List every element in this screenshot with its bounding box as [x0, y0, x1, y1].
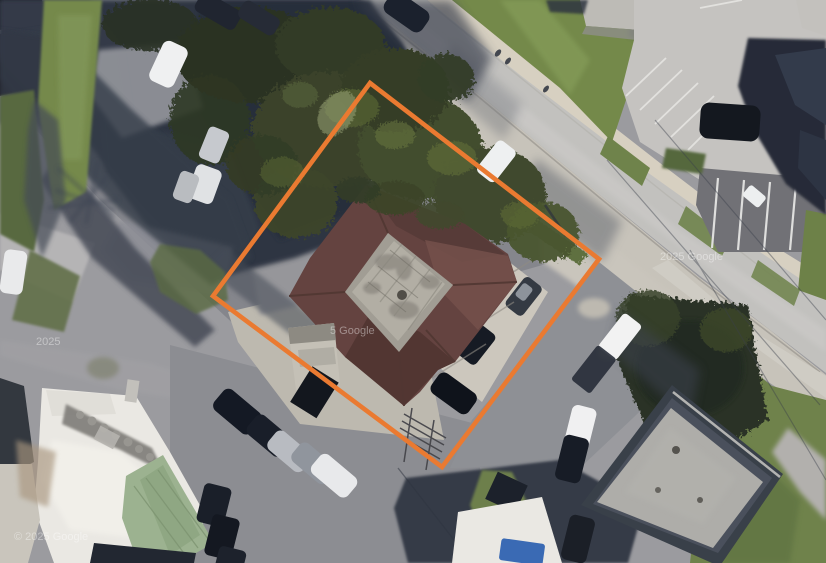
svg-text:© 2025 Google: © 2025 Google — [14, 531, 88, 543]
svg-text:2025: 2025 — [36, 336, 60, 348]
svg-text:5 Google: 5 Google — [330, 325, 375, 337]
svg-text:2025 Google: 2025 Google — [660, 251, 723, 263]
